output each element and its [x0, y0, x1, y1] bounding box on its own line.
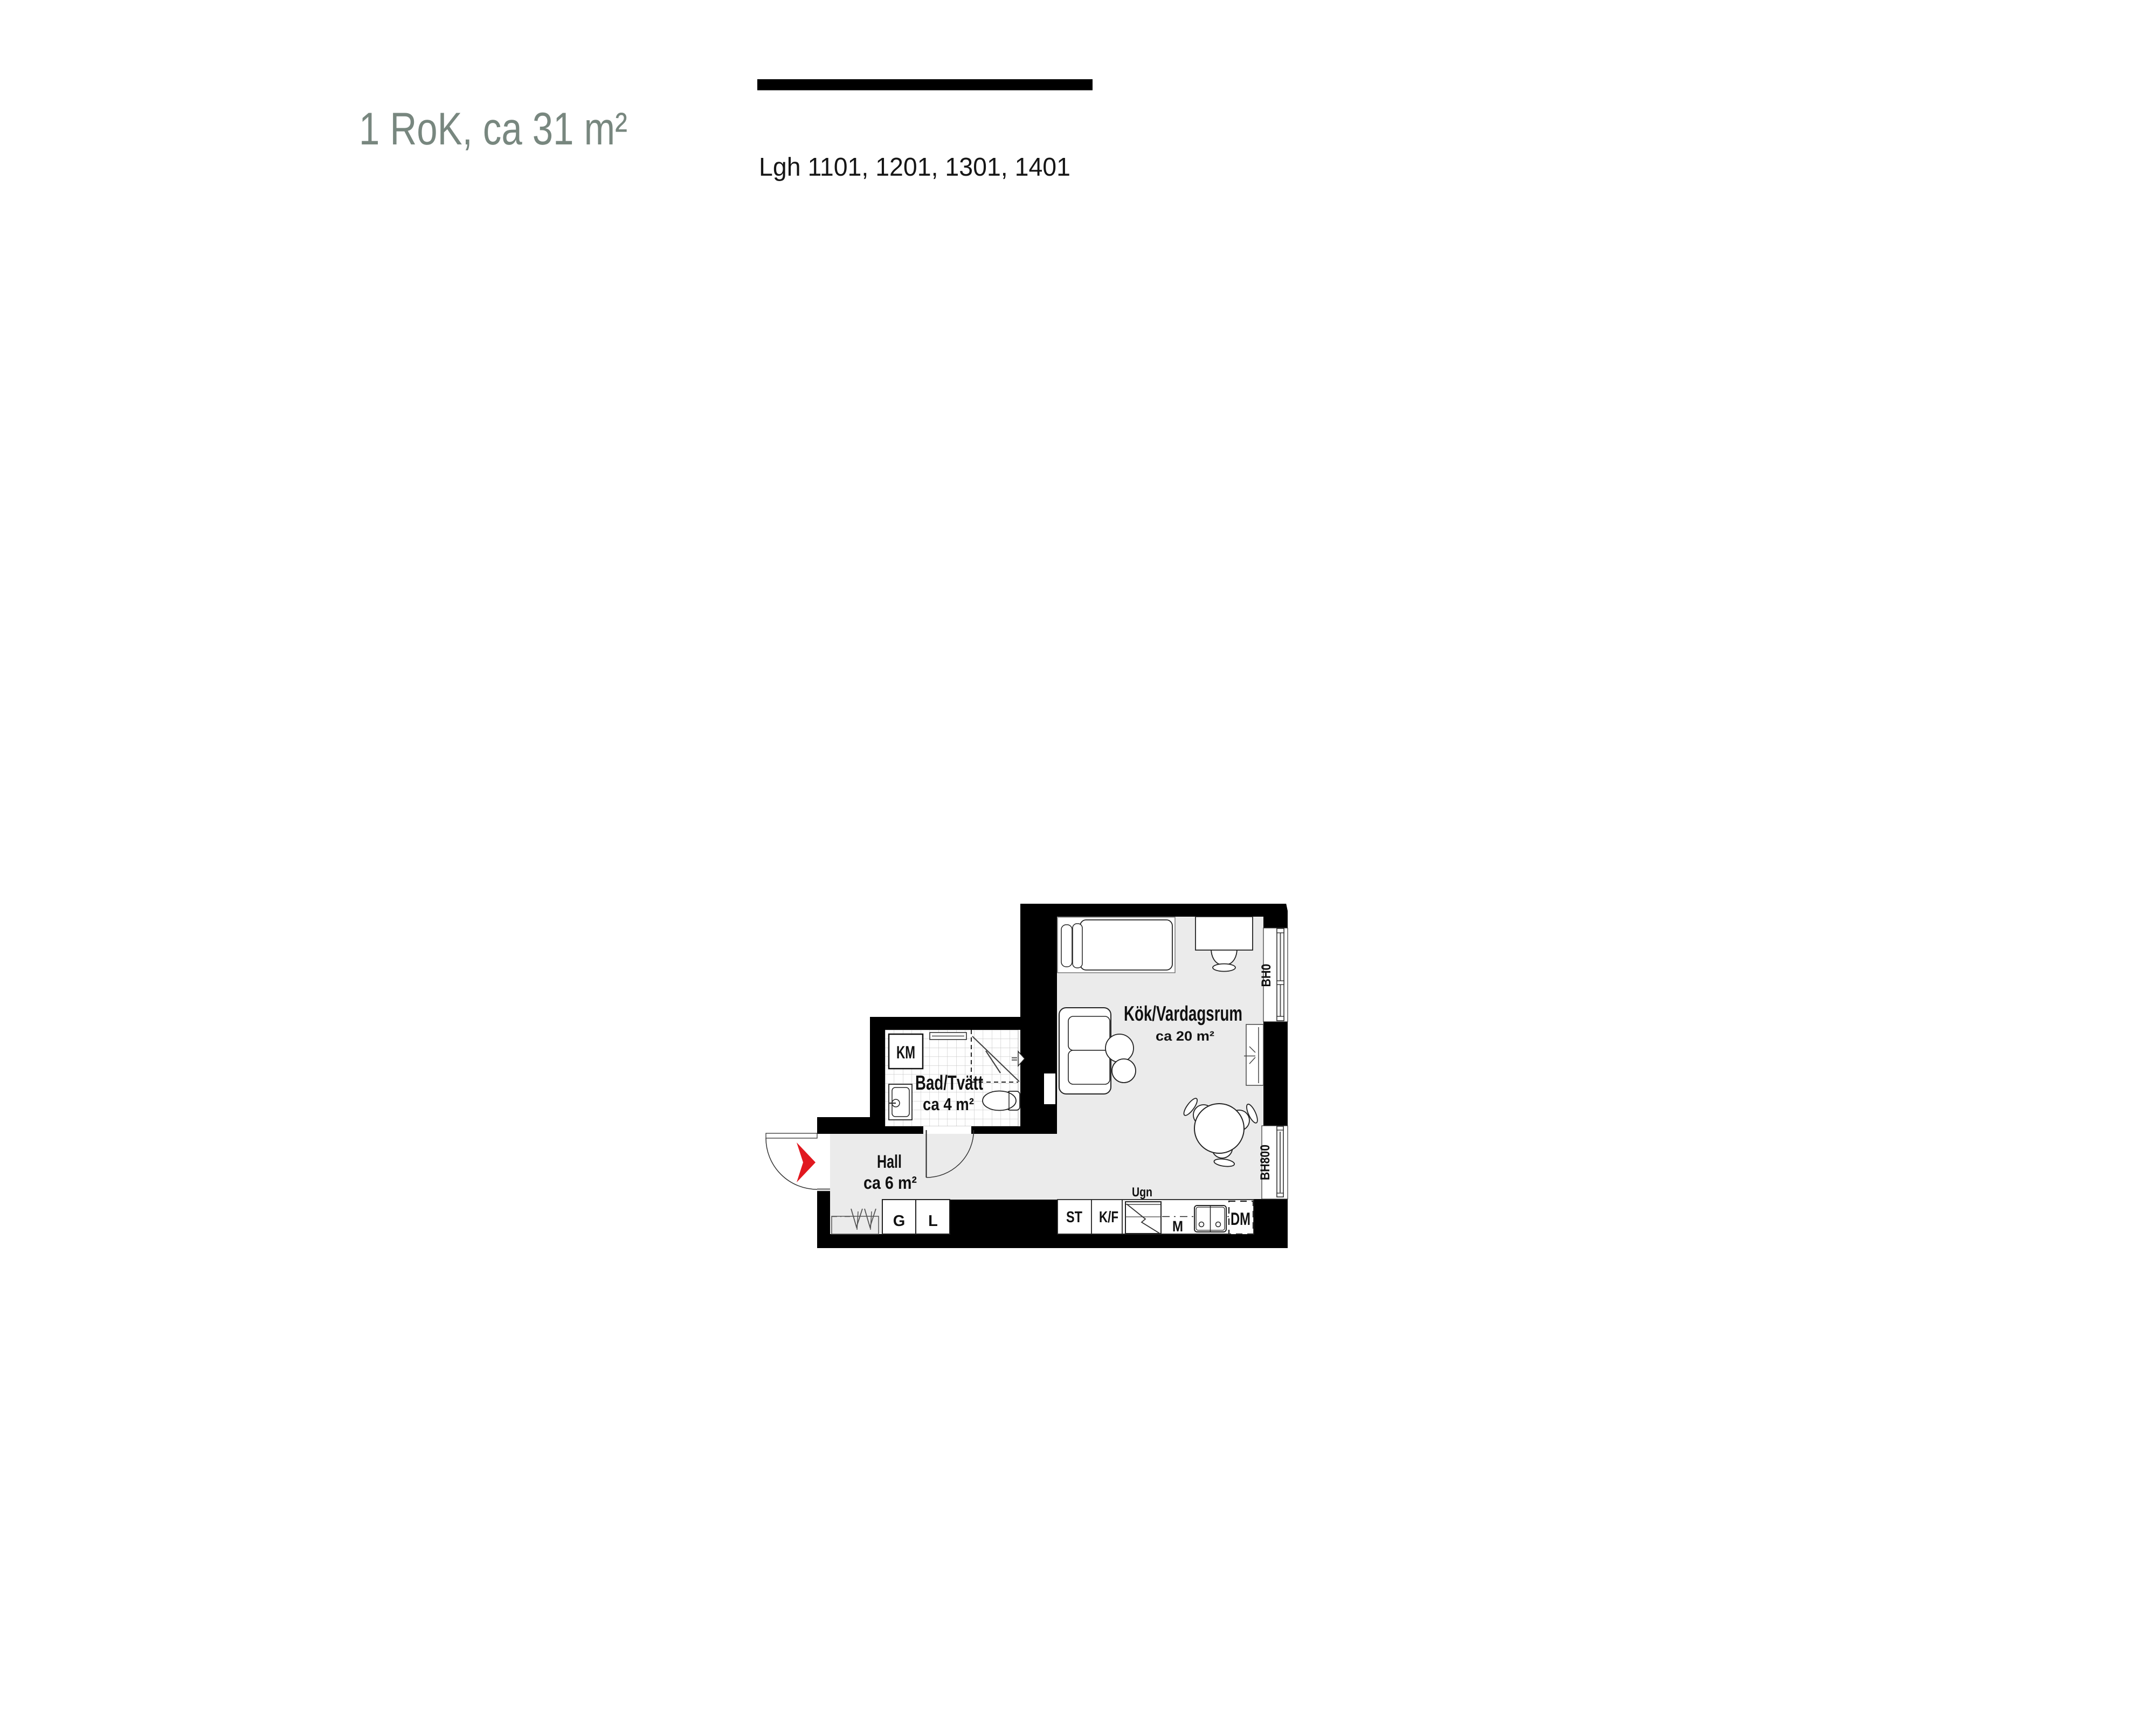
- svg-text:M: M: [1172, 1218, 1183, 1235]
- svg-text:Ugn: Ugn: [1132, 1185, 1152, 1200]
- svg-text:K/F: K/F: [1099, 1209, 1118, 1226]
- svg-text:BH0: BH0: [1259, 964, 1274, 987]
- svg-text:KM: KM: [896, 1042, 915, 1062]
- svg-text:ST: ST: [1066, 1209, 1082, 1226]
- svg-text:Hall: Hall: [877, 1152, 902, 1172]
- svg-text:BH800: BH800: [1258, 1145, 1273, 1180]
- svg-text:Kök/Vardagsrum: Kök/Vardagsrum: [1124, 1002, 1242, 1026]
- svg-text:G: G: [893, 1213, 906, 1230]
- svg-text:ca 4 m²: ca 4 m²: [923, 1094, 974, 1114]
- svg-text:1 RoK, ca 31 m²: 1 RoK, ca 31 m²: [359, 103, 627, 155]
- svg-text:DM: DM: [1231, 1209, 1250, 1229]
- svg-text:L: L: [928, 1213, 938, 1230]
- svg-text:ca 6 m²: ca 6 m²: [863, 1173, 917, 1193]
- svg-text:Bad/Tvätt: Bad/Tvätt: [915, 1072, 983, 1094]
- svg-text:Lgh 1101, 1201, 1301, 1401: Lgh 1101, 1201, 1301, 1401: [759, 153, 1070, 182]
- svg-text:ca 20 m²: ca 20 m²: [1156, 1029, 1214, 1044]
